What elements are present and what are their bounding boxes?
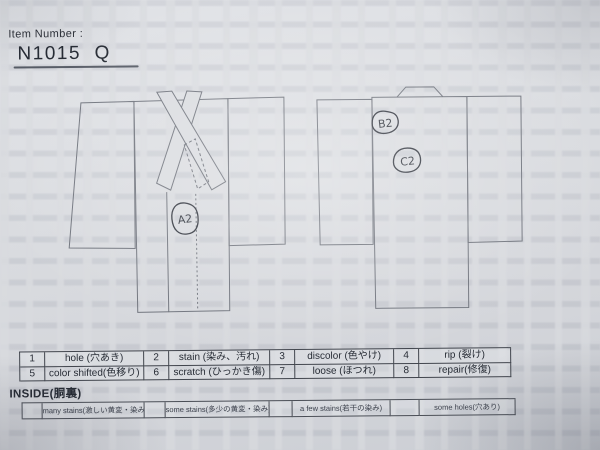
annotation-b2-text: B2: [377, 116, 393, 131]
defect-legend-table: 1 hole (穴あき) 2 stain (染み、汚れ) 3 discolor …: [19, 347, 511, 381]
annotation-c2-text: C2: [400, 154, 416, 168]
inside-checkbox-cell: [145, 402, 166, 418]
defect-code-cell: 2: [144, 351, 169, 366]
front-right-sleeve: [228, 97, 285, 245]
inside-label-cell: some holes(穴あり): [420, 399, 516, 416]
annotation-a2-text: A2: [177, 212, 193, 227]
defect-code-cell: 8: [394, 363, 419, 378]
back-right-sleeve: [467, 96, 522, 242]
defect-label-cell: discolor (色やけ): [295, 349, 394, 364]
defect-label-cell: scratch (ひっかき傷): [169, 365, 270, 380]
defect-code-cell: 6: [144, 366, 169, 381]
inside-label-cell: some stains(多少の黄変・染み): [166, 401, 270, 418]
defect-code-cell: 3: [270, 350, 295, 365]
kimono-front-diagram: [68, 90, 286, 313]
inspection-sheet-photo: Item Number : N1015 Q: [0, 0, 600, 450]
defect-label-cell: stain (染み、汚れ): [169, 350, 270, 365]
defect-code-cell: 4: [394, 349, 419, 364]
defect-code-cell: 1: [20, 352, 45, 367]
inside-label-cell: a few stains(若干の染み): [293, 400, 391, 417]
kimono-back-diagram: [317, 86, 523, 309]
inside-checkbox-cell: [23, 403, 43, 419]
inside-checkbox-cell: [270, 401, 293, 417]
defect-label-cell: loose (ほつれ): [295, 364, 394, 379]
inside-checkbox-cell: [391, 400, 420, 416]
back-collar: [397, 87, 443, 97]
inside-section-title: INSIDE(胴裏): [9, 385, 81, 402]
kimono-diagrams: A2 B2 C2: [0, 0, 600, 450]
defect-label-cell: hole (穴あき): [45, 351, 144, 366]
inside-label-cell: many stains(激しい黄変・染み): [43, 402, 145, 419]
defect-code-cell: 7: [270, 365, 295, 380]
defect-label-cell: rip (裂け): [419, 348, 511, 363]
defect-label-cell: repair(修復): [419, 363, 511, 378]
defect-code-cell: 5: [20, 367, 45, 382]
front-left-sleeve: [68, 101, 135, 249]
back-left-sleeve: [317, 99, 373, 244]
defect-label-cell: color shifted(色移り): [45, 366, 144, 381]
front-overlap-seam: [167, 192, 169, 312]
